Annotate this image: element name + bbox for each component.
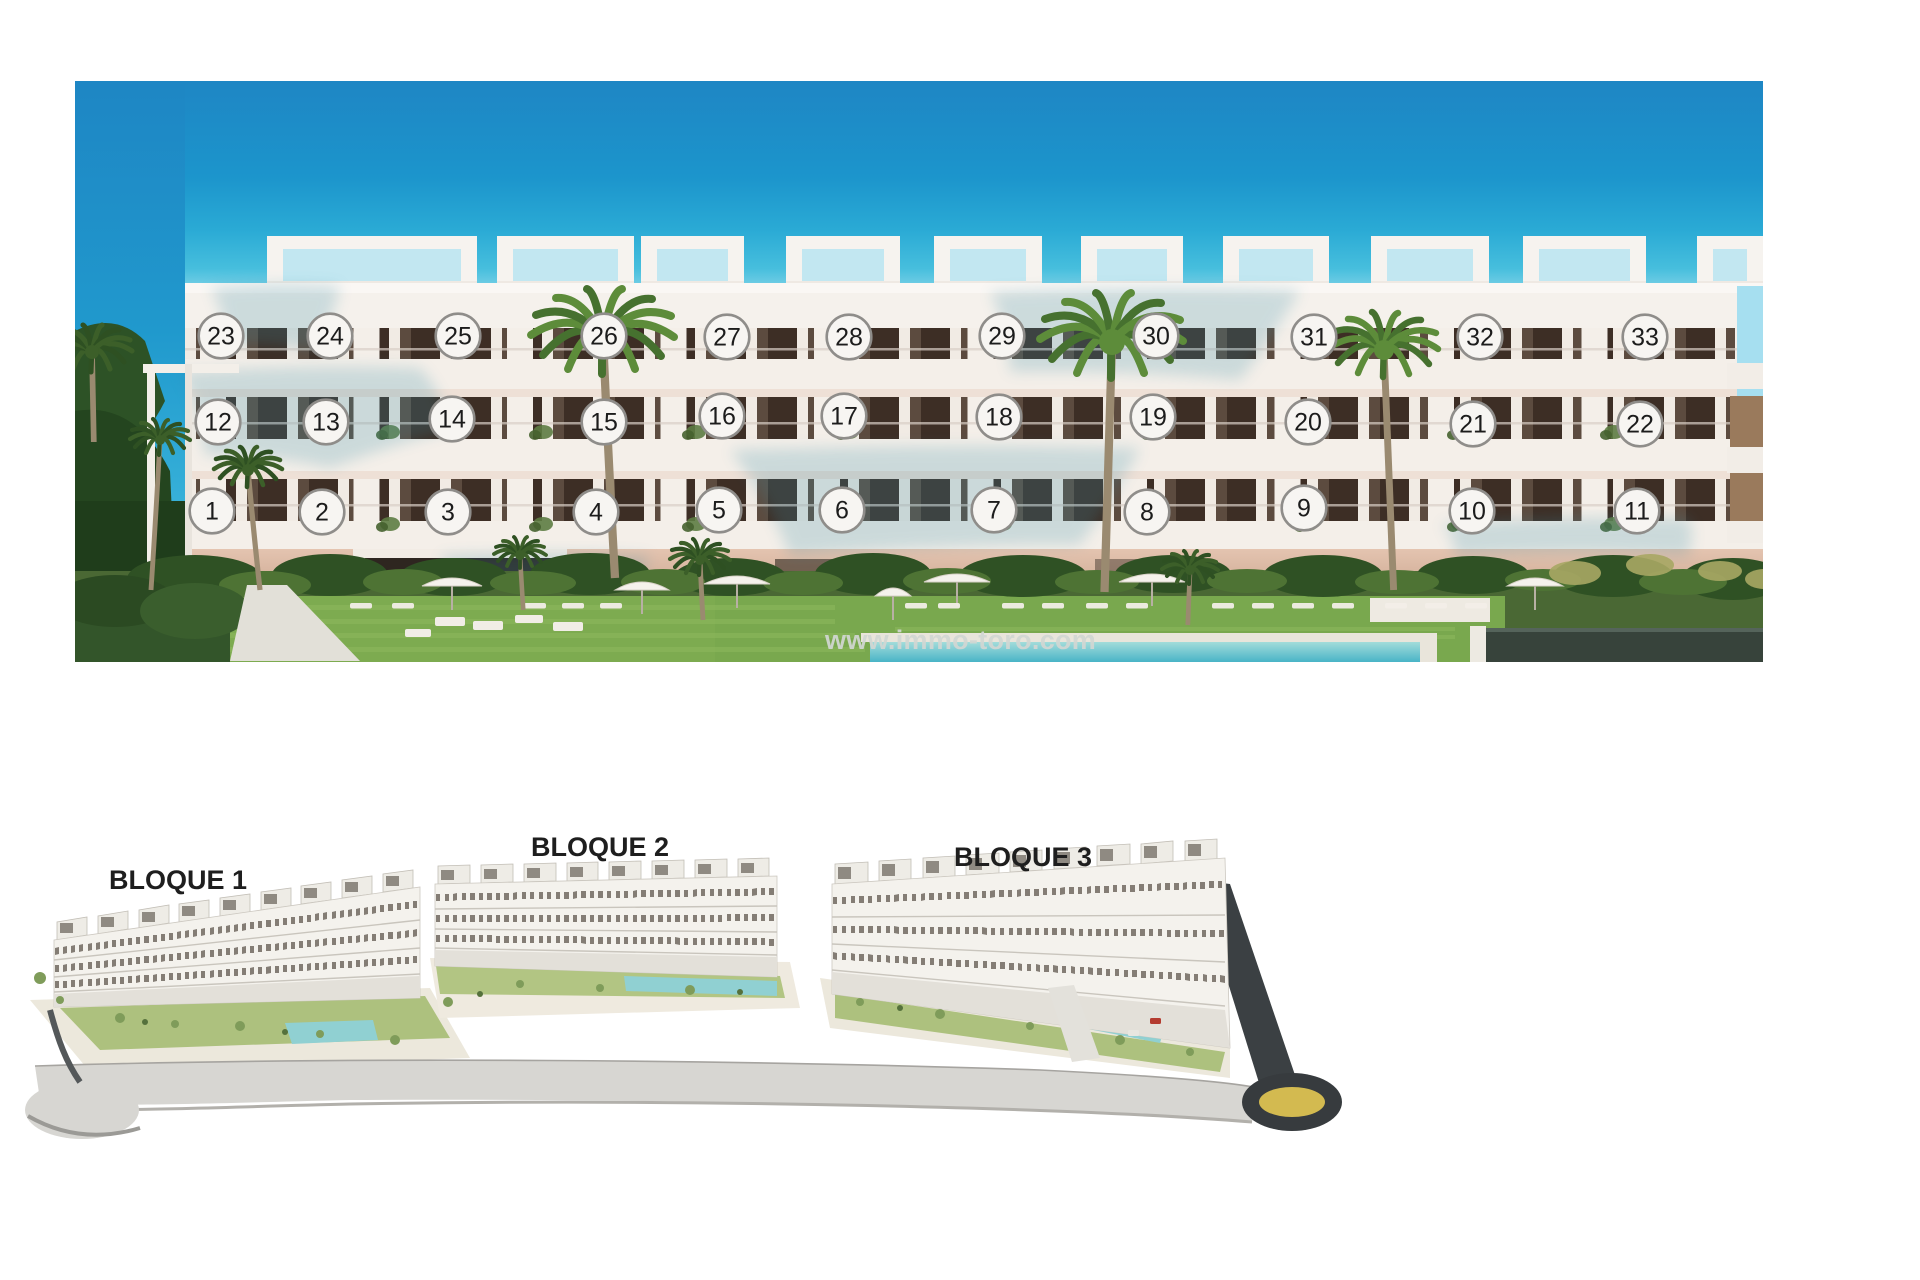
svg-text:18: 18 <box>985 404 1013 432</box>
svg-text:30: 30 <box>1142 323 1170 351</box>
svg-text:11: 11 <box>1624 498 1650 526</box>
svg-text:8: 8 <box>1140 499 1154 527</box>
svg-text:32: 32 <box>1466 324 1494 352</box>
svg-text:7: 7 <box>987 497 1001 525</box>
svg-text:12: 12 <box>204 409 232 437</box>
svg-text:20: 20 <box>1294 409 1322 437</box>
svg-text:6: 6 <box>835 497 849 525</box>
svg-text:17: 17 <box>830 403 858 431</box>
svg-text:29: 29 <box>988 323 1016 351</box>
svg-text:BLOQUE 3: BLOQUE 3 <box>954 842 1092 872</box>
svg-text:14: 14 <box>438 406 466 434</box>
svg-text:28: 28 <box>835 324 863 352</box>
svg-text:BLOQUE 2: BLOQUE 2 <box>531 832 669 862</box>
svg-text:22: 22 <box>1626 411 1654 439</box>
svg-text:21: 21 <box>1459 411 1487 439</box>
svg-text:1: 1 <box>205 498 219 526</box>
svg-text:10: 10 <box>1458 498 1486 526</box>
svg-text:33: 33 <box>1631 324 1659 352</box>
svg-text:25: 25 <box>444 323 472 351</box>
svg-text:4: 4 <box>589 499 603 527</box>
svg-text:9: 9 <box>1297 495 1311 523</box>
svg-text:3: 3 <box>441 499 455 527</box>
svg-text:23: 23 <box>207 323 235 351</box>
svg-text:BLOQUE 1: BLOQUE 1 <box>109 865 247 895</box>
svg-text:15: 15 <box>590 409 618 437</box>
svg-text:2: 2 <box>315 499 329 527</box>
svg-text:16: 16 <box>708 403 736 431</box>
svg-text:19: 19 <box>1139 404 1167 432</box>
svg-text:13: 13 <box>312 409 340 437</box>
svg-text:24: 24 <box>316 323 344 351</box>
svg-text:www.immo-toro.com: www.immo-toro.com <box>824 625 1096 655</box>
svg-text:5: 5 <box>712 497 726 525</box>
svg-text:26: 26 <box>590 323 618 351</box>
svg-text:31: 31 <box>1300 324 1328 352</box>
svg-text:27: 27 <box>713 324 741 352</box>
